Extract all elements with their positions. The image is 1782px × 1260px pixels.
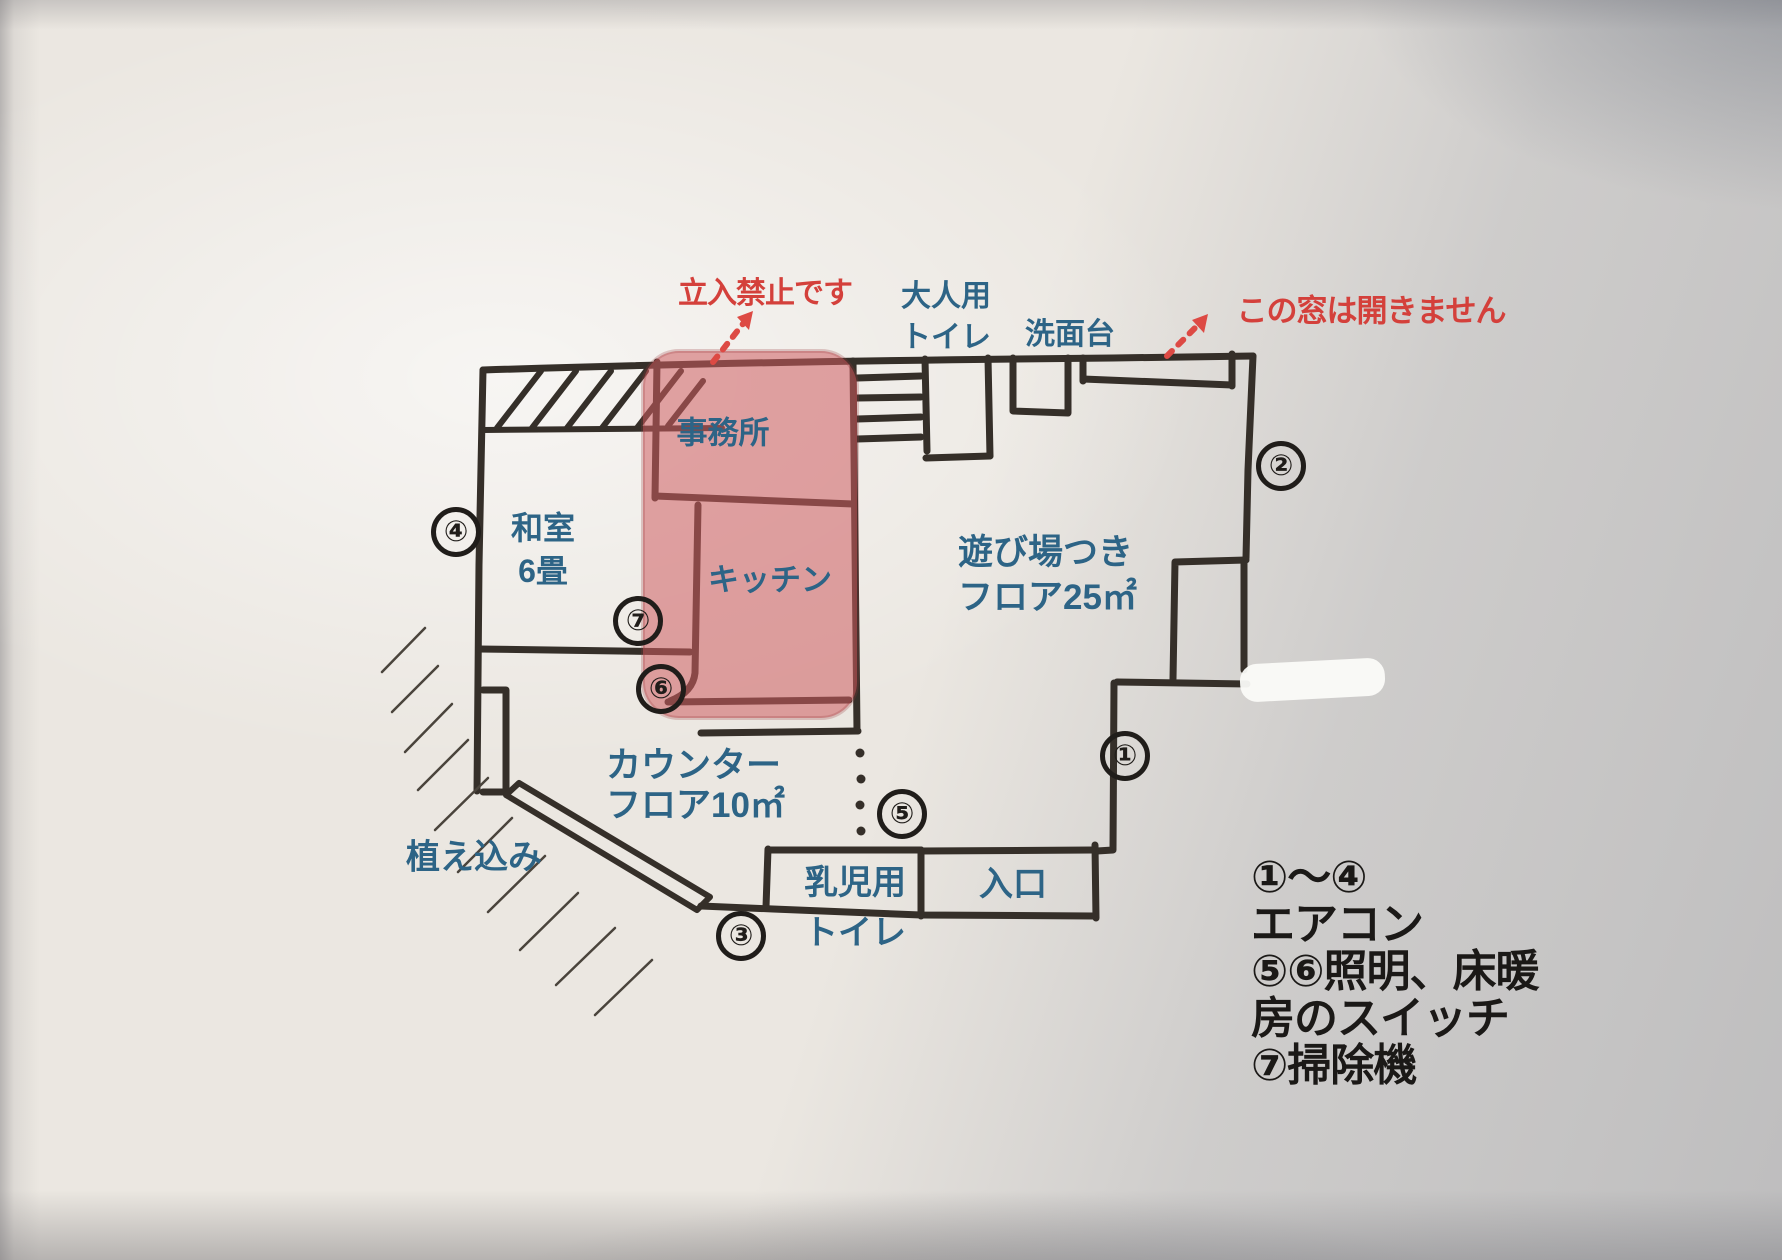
window-arrow bbox=[1167, 314, 1208, 356]
label-window-warning: この窓は開きません bbox=[1236, 286, 1505, 331]
marker-2: ② bbox=[1256, 441, 1306, 491]
label-no-entry: 立入禁止です bbox=[678, 268, 852, 312]
label-planting: 植え込み bbox=[406, 830, 542, 879]
marker-3: ③ bbox=[716, 911, 766, 961]
legend-line: ①～④ bbox=[1251, 854, 1539, 901]
marker-6: ⑥ bbox=[636, 664, 686, 714]
label-kitchen: キッチン bbox=[708, 555, 832, 600]
pink-no-entry-overlay bbox=[643, 351, 857, 718]
marker-4: ④ bbox=[431, 507, 481, 557]
legend-line: ⑤⑥照明、床暖 bbox=[1251, 948, 1539, 995]
label-adult-toilet: 大人用 トイレ bbox=[901, 276, 991, 358]
marker-7: ⑦ bbox=[613, 596, 663, 646]
label-entrance: 入口 bbox=[979, 857, 1047, 906]
legend-line: ⑦掃除機 bbox=[1251, 1042, 1539, 1089]
legend: ①～④ エアコン ⑤⑥照明、床暖 房のスイッチ ⑦掃除機 bbox=[1251, 854, 1539, 1089]
label-office: 事務所 bbox=[677, 408, 770, 453]
label-playroom: 遊び場つき フロア25㎡ bbox=[958, 530, 1137, 620]
floor-plan-photo: 立入禁止です この窓は開きません 事務所 キッチン 和室 6畳 遊び場つき フロ… bbox=[0, 0, 1782, 1260]
marker-1: ① bbox=[1100, 731, 1150, 781]
label-counter: カウンター フロア10㎡ bbox=[606, 746, 785, 826]
legend-line: 房のスイッチ bbox=[1251, 995, 1539, 1042]
legend-line: エアコン bbox=[1251, 901, 1539, 948]
door-dotted-line bbox=[856, 749, 866, 836]
white-correction-patch bbox=[1239, 657, 1386, 703]
label-washbasin: 洗面台 bbox=[1025, 309, 1115, 353]
label-washitsu: 和室 6畳 bbox=[511, 507, 575, 593]
marker-5: ⑤ bbox=[877, 789, 927, 839]
label-infant-toilet: 乳児用 トイレ bbox=[804, 858, 906, 958]
